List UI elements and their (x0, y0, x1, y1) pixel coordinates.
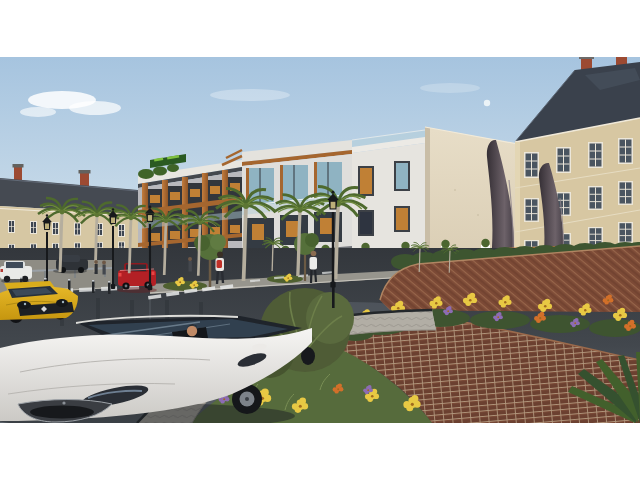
scene-canvas (0, 0, 640, 480)
taillight (152, 272, 155, 276)
pedestrian (102, 261, 106, 275)
headlight (56, 299, 68, 307)
pedestrian (188, 257, 192, 272)
letterbox-bottom (0, 423, 640, 480)
taillight (119, 273, 122, 277)
photo-area (0, 46, 640, 429)
planting-pocket (163, 281, 207, 291)
pedestrian (94, 260, 98, 274)
headlight (17, 301, 31, 309)
architectural-render-image (0, 0, 640, 480)
taillight (1, 269, 4, 272)
letterbox-top (0, 0, 640, 57)
moon (484, 100, 490, 106)
badge (62, 401, 65, 404)
quoins (515, 142, 520, 265)
